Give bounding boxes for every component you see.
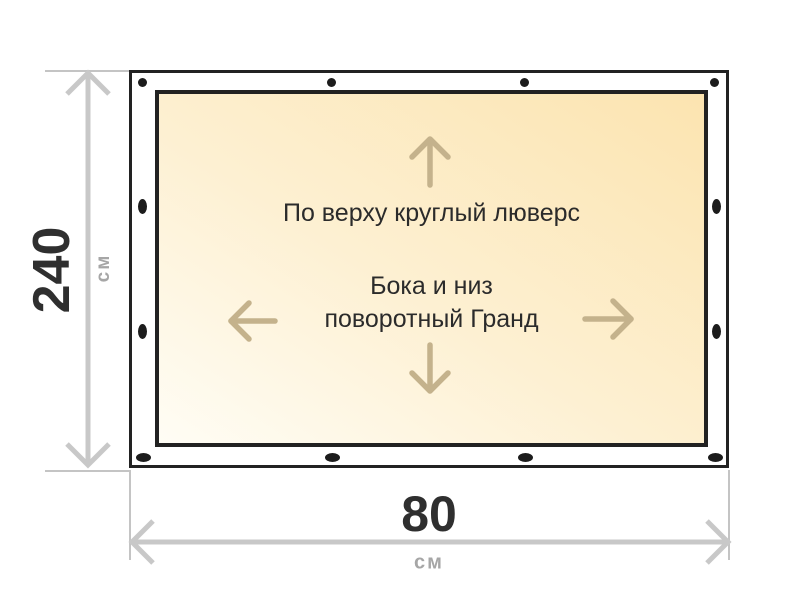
down-arrow-icon xyxy=(405,338,455,398)
grommet-icon xyxy=(138,78,147,87)
grommet-icon xyxy=(710,78,719,87)
grommet-icon xyxy=(136,453,151,462)
grommet-icon xyxy=(325,453,340,462)
grommet-icon xyxy=(518,453,533,462)
sides-bottom-note-line1: Бока и низ xyxy=(155,270,708,303)
height-dimension-unit: см xyxy=(93,254,115,283)
width-dimension-unit: см xyxy=(414,552,444,575)
grommet-icon xyxy=(138,324,147,339)
grommet-icon xyxy=(712,199,721,214)
grommet-icon xyxy=(327,78,336,87)
width-dimension-value: 80 xyxy=(401,485,457,543)
grommet-icon xyxy=(520,78,529,87)
height-dimension-value: 240 xyxy=(22,227,82,314)
grommet-icon xyxy=(712,324,721,339)
banner-size-diagram: 240 см 80 см По верху круглый лю xyxy=(0,0,800,600)
sides-bottom-note-line2: поворотный Гранд xyxy=(155,303,708,336)
top-grommet-note: По верху круглый люверс xyxy=(155,197,708,230)
grommet-icon xyxy=(708,453,723,462)
grommet-icon xyxy=(138,199,147,214)
up-arrow-icon xyxy=(405,130,455,192)
sides-bottom-note: Бока и низ поворотный Гранд xyxy=(155,270,708,336)
